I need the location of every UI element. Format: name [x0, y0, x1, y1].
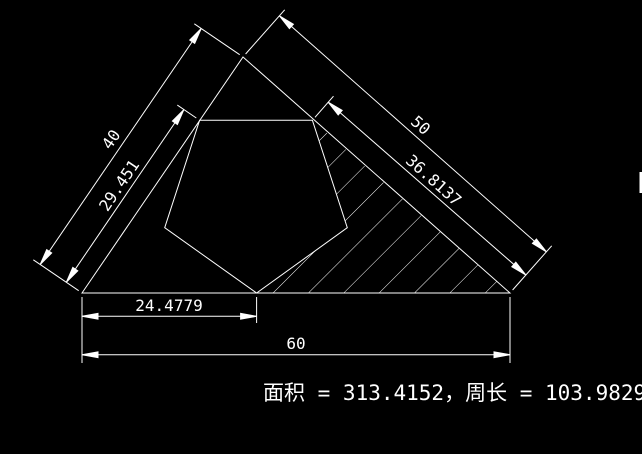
- dimension-text-40: 40: [98, 126, 125, 153]
- cad-drawing-canvas: 40 29.451 50 36.8137: [0, 0, 642, 454]
- dimension-line: [66, 110, 184, 283]
- dimension-text-244779: 24.4779: [135, 296, 202, 315]
- dimension-text-368137: 36.8137: [402, 151, 465, 210]
- arrowhead-icon: [494, 352, 510, 358]
- dimension-left-outer: 40: [33, 24, 239, 291]
- arrowhead-icon: [82, 313, 98, 319]
- arrowhead-icon: [328, 102, 342, 115]
- arrowhead-icon: [190, 29, 202, 44]
- arrowhead-icon: [532, 239, 546, 252]
- arrowhead-icon: [279, 16, 293, 29]
- area-perimeter-annotation: 面积 = 313.4152，周长 = 103.9829: [263, 381, 642, 405]
- dimension-line: [40, 29, 201, 265]
- arrowhead-icon: [172, 110, 184, 125]
- extension-line: [315, 96, 334, 117]
- dimension-bottom-inner: 24.4779: [82, 296, 257, 363]
- arrowhead-icon: [82, 352, 98, 358]
- dimension-text-50: 50: [407, 112, 434, 139]
- dimension-text-60: 60: [286, 334, 305, 353]
- hatch-region: [257, 120, 510, 293]
- arrowhead-icon: [512, 262, 526, 275]
- arrowhead-icon: [66, 267, 78, 282]
- extension-line: [246, 10, 285, 54]
- cad-viewport[interactable]: 40 29.451 50 36.8137: [0, 0, 642, 454]
- arrowhead-icon: [241, 313, 257, 319]
- arrowhead-icon: [40, 250, 52, 265]
- dimension-text-29451: 29.451: [95, 156, 143, 214]
